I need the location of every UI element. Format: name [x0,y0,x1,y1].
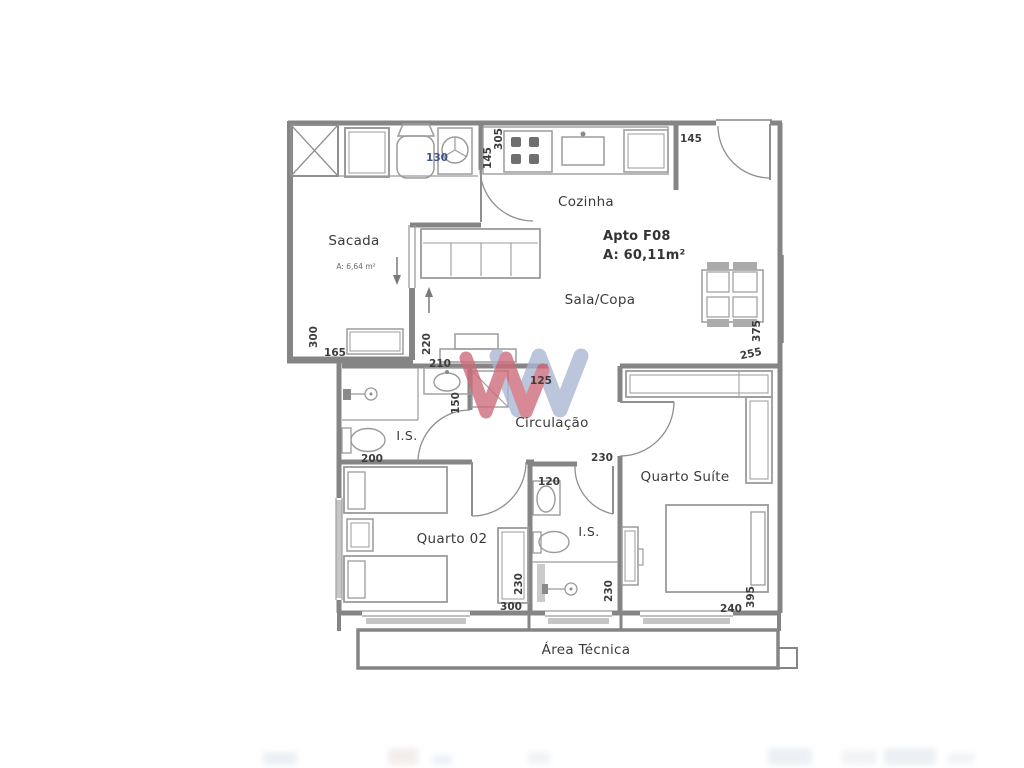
kitchen-sink [562,132,604,166]
dim-200: 200 [361,453,383,465]
room-label-cozinha: Cozinha [558,194,614,210]
dining-table [702,262,763,327]
bed-double [666,505,768,592]
room-label-is2: I.S. [578,524,599,539]
is1-door [418,410,470,462]
is1-toilet [342,428,385,453]
dim-395: 395 [745,586,757,608]
room-label-circulacao: Circulação [515,415,588,431]
suite-wardrobe-right [746,397,772,483]
quarto02-nightstand [347,519,373,551]
dim-145-entry: 145 [680,133,702,145]
utility-shaft [291,125,338,176]
is1-shower [342,368,418,420]
quarto02-door [472,462,526,516]
room-area-sacada: A: 6,64 m² [336,262,375,271]
kitchen-door [480,168,533,222]
balcony-bench [347,329,403,354]
washing-machine [438,128,472,174]
entry-door [718,124,770,180]
dim-230-is2: 230 [603,580,615,602]
room-label-quarto02: Quarto 02 [417,531,488,547]
dim-145-kitchen: 145 [482,147,494,169]
bed-single-1 [344,467,447,513]
is2-toilet [533,532,569,554]
apto-area: A: 60,11m² [603,248,685,263]
dim-165: 165 [324,347,346,359]
dim-210: 210 [429,358,451,370]
balcony-sliding-door [409,225,415,288]
window-is2-bottom [545,608,612,624]
stove [504,131,552,172]
dim-150: 150 [450,392,462,414]
dim-230-circ: 230 [591,452,613,464]
apto-number: Apto F08 [603,229,671,244]
cut-off-text-remnant [263,748,974,765]
room-label-sala: Sala/Copa [565,292,636,308]
dim-375: 375 [751,320,763,342]
is1-washbasin [424,368,470,394]
dim-230-quarto02: 230 [513,573,525,595]
suite-nightstand [622,527,643,585]
service-cabinet [345,128,389,177]
dim-255: 255 [739,346,763,362]
suite-wardrobe-top [626,371,772,397]
window-quarto02-bottom [362,608,470,624]
dim-130: 130 [426,152,448,164]
level-arrow-down-icon [393,257,401,285]
room-label-sacada: Sacada [328,233,379,249]
fridge [624,130,668,172]
suite-door [620,402,674,456]
room-label-quarto-suite: Quarto Suíte [641,469,730,485]
dim-220: 220 [421,333,433,355]
dim-240: 240 [720,603,742,615]
is2-door [575,466,613,514]
floor-plan-page: Sacada A: 6,64 m² Cozinha Apto F08 A: 60… [0,0,1024,768]
bed-single-2 [344,556,447,602]
dim-125: 125 [530,375,552,387]
sofa [421,229,540,278]
room-label-area-tecnica: Área Técnica [542,641,631,658]
dim-305: 305 [493,128,505,150]
room-label-is1: I.S. [396,428,417,443]
floor-plan-drawing: Sacada A: 6,64 m² Cozinha Apto F08 A: 60… [0,0,1024,768]
dim-300-sacada: 300 [308,326,320,348]
level-arrow-up-icon [425,287,433,313]
laundry-tub [397,124,434,178]
dim-300-quarto02: 300 [500,601,522,613]
dim-120: 120 [538,476,560,488]
